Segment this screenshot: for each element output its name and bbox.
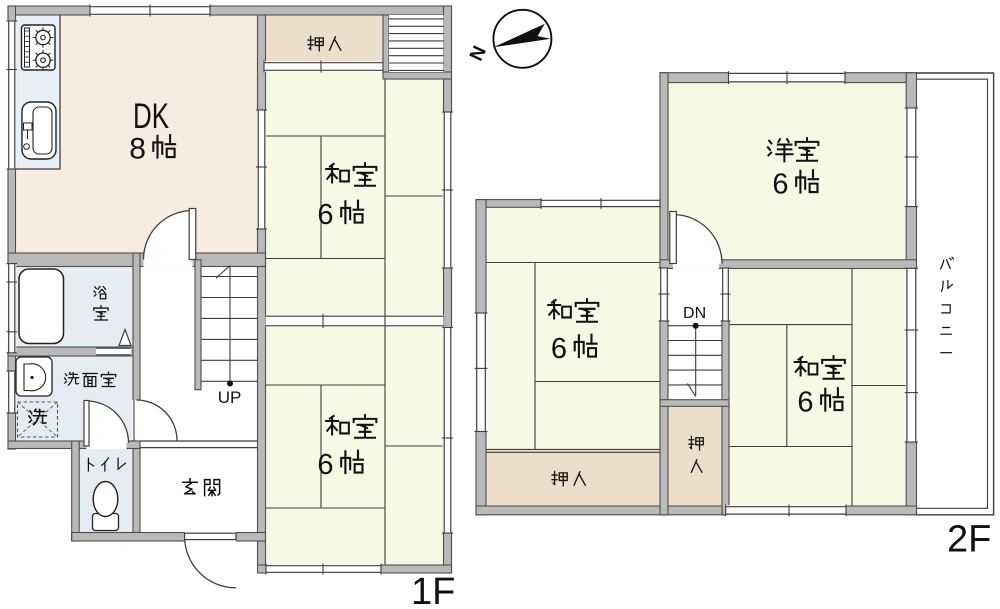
svg-text:6: 6 bbox=[551, 333, 567, 365]
svg-text:8: 8 bbox=[129, 133, 146, 166]
svg-text:2F: 2F bbox=[947, 519, 991, 561]
svg-text:6: 6 bbox=[317, 449, 333, 481]
svg-text:6: 6 bbox=[772, 169, 788, 201]
svg-text:DK: DK bbox=[133, 97, 169, 136]
svg-text:6: 6 bbox=[797, 387, 813, 419]
svg-text:UP: UP bbox=[218, 388, 242, 407]
svg-text:1F: 1F bbox=[411, 571, 455, 609]
svg-text:6: 6 bbox=[317, 199, 333, 231]
svg-text:DN: DN bbox=[683, 305, 706, 322]
